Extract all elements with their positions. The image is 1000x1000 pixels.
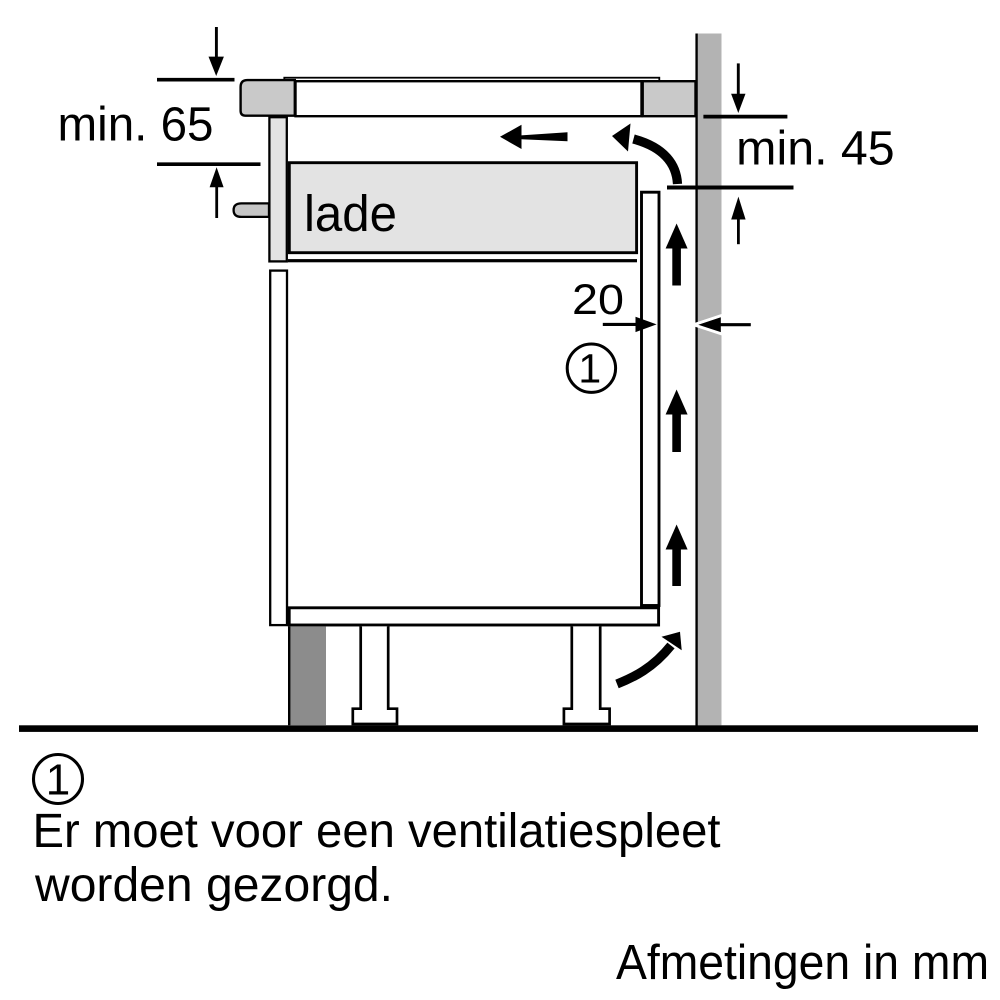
svg-text:Er moet voor een ventilatiespl: Er moet voor een ventilatiespleet [33, 805, 721, 858]
svg-text:min. 65: min. 65 [58, 98, 214, 151]
svg-text:1: 1 [46, 756, 70, 805]
svg-text:1: 1 [578, 345, 601, 391]
svg-text:Afmetingen in mm: Afmetingen in mm [616, 936, 989, 990]
svg-text:20: 20 [572, 276, 624, 324]
svg-text:worden gezorgd.: worden gezorgd. [34, 859, 393, 912]
svg-text:min. 45: min. 45 [736, 122, 895, 175]
svg-text:lade: lade [304, 185, 397, 242]
